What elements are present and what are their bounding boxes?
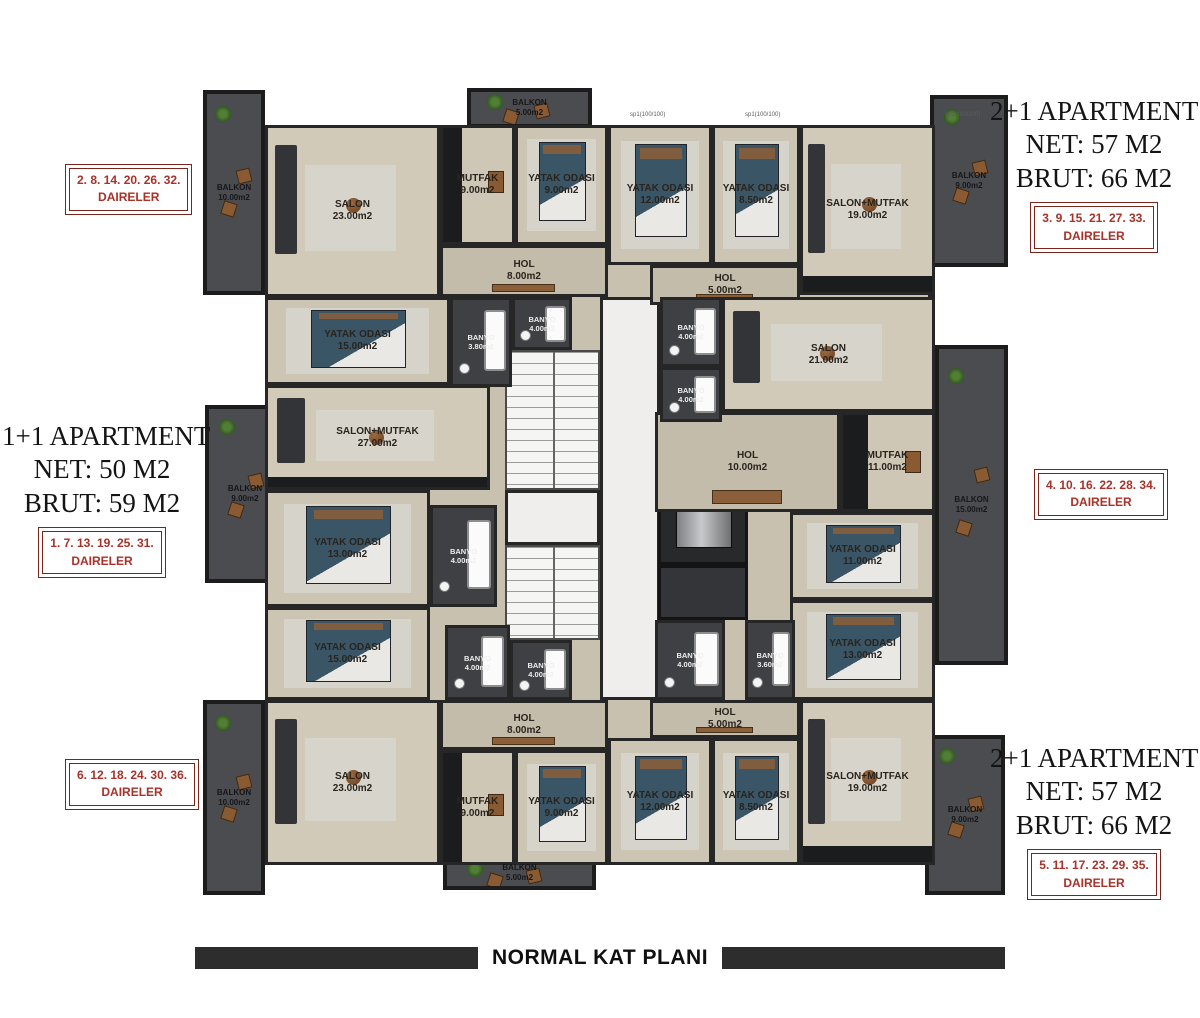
daireler-label: DAIRELER bbox=[50, 553, 153, 570]
room-label: BANYO4.00m2 bbox=[464, 654, 491, 672]
room-label: BANYO4.00m2 bbox=[677, 323, 704, 341]
room-label: YATAK ODASI15.00m2 bbox=[324, 329, 391, 353]
balcony: BALKON10.00m2 bbox=[203, 90, 265, 295]
room-hol: HOL10.00m2 bbox=[655, 412, 840, 512]
plant-icon bbox=[487, 94, 503, 110]
apartment-net: NET: 57 M2 bbox=[990, 775, 1198, 808]
apartment-brut: BRUT: 66 M2 bbox=[990, 162, 1198, 195]
daireler-label: DAIRELER bbox=[77, 784, 187, 801]
room-label: YATAK ODASI8.50m2 bbox=[723, 790, 790, 814]
room-label: HOL8.00m2 bbox=[507, 259, 541, 283]
room-label: BALKON5.00m2 bbox=[502, 863, 536, 882]
room-label: SALON+MUTFAK19.00m2 bbox=[826, 771, 909, 795]
room-label: BALKON15.00m2 bbox=[954, 495, 988, 514]
room-banyo: BANYO4.00m2 bbox=[510, 640, 572, 700]
unit-box-middle-left: 1. 7. 13. 19. 25. 31. DAIRELER bbox=[38, 527, 165, 578]
sink bbox=[519, 680, 530, 691]
unit-numbers: 2. 8. 14. 20. 26. 32. bbox=[77, 172, 180, 189]
room-label: BALKON10.00m2 bbox=[217, 788, 251, 807]
room-label: HOL5.00m2 bbox=[708, 707, 742, 731]
unit-box-bottom-left: 6. 12. 18. 24. 30. 36. DAIRELER bbox=[65, 759, 199, 810]
room-mutfak: MUTFAK11.00m2 bbox=[840, 412, 935, 512]
sofa bbox=[277, 398, 305, 463]
room-yatak-odasi: YATAK ODASI13.00m2 bbox=[265, 490, 430, 607]
apartment-info-bottom-right: 2+1 APARTMENT NET: 57 M2 BRUT: 66 M2 5. … bbox=[990, 742, 1198, 900]
room-yatak-odasi: YATAK ODASI15.00m2 bbox=[265, 607, 430, 700]
room-yatak-odasi: YATAK ODASI8.50m2 bbox=[712, 125, 800, 265]
room-label: YATAK ODASI9.00m2 bbox=[528, 796, 595, 820]
room-label: BALKON5.00m2 bbox=[512, 98, 546, 117]
apartment-info-middle-left: 1+1 APARTMENT NET: 50 M2 BRUT: 59 M2 1. … bbox=[2, 420, 202, 578]
room-label: YATAK ODASI8.50m2 bbox=[723, 183, 790, 207]
room-label: YATAK ODASI13.00m2 bbox=[829, 638, 896, 662]
room-label: BALKON10.00m2 bbox=[217, 183, 251, 202]
core-area bbox=[658, 565, 748, 620]
room-label: HOL5.00m2 bbox=[708, 273, 742, 297]
plant-icon bbox=[948, 368, 964, 384]
sofa bbox=[733, 311, 760, 383]
room-label: SALON23.00m2 bbox=[333, 771, 372, 795]
plant-icon bbox=[215, 715, 231, 731]
apartment-net: NET: 50 M2 bbox=[2, 453, 202, 486]
room-label: BANYO4.00m2 bbox=[527, 661, 554, 679]
apartment-type-title: 1+1 APARTMENT bbox=[2, 420, 202, 453]
room-salon-mutfak: SALON+MUTFAK27.00m2 bbox=[265, 385, 490, 490]
unit-numbers: 1. 7. 13. 19. 25. 31. bbox=[50, 535, 153, 552]
room-banyo: BANYO4.00m2 bbox=[512, 297, 572, 350]
sideboard bbox=[712, 490, 782, 504]
core-area bbox=[600, 297, 660, 700]
kitchen-counter bbox=[803, 846, 932, 862]
room-label: HOL8.00m2 bbox=[507, 713, 541, 737]
room-yatak-odasi: YATAK ODASI9.00m2 bbox=[515, 750, 608, 865]
room-banyo: BANYO3.60m2 bbox=[745, 620, 795, 700]
kitchen-counter bbox=[843, 415, 868, 509]
sink bbox=[752, 677, 763, 688]
kitchen-counter bbox=[803, 276, 932, 292]
window-dimension-label: sp1(100/100) bbox=[630, 112, 680, 120]
sofa bbox=[275, 145, 297, 255]
sink bbox=[454, 678, 465, 689]
room-label: YATAK ODASI12.00m2 bbox=[627, 183, 694, 207]
room-label: BANYO4.00m2 bbox=[528, 315, 555, 333]
room-banyo: BANYO3.80m2 bbox=[450, 297, 512, 387]
unit-box-middle-right: 4. 10. 16. 22. 28. 34. DAIRELER bbox=[1034, 469, 1168, 520]
room-salon: SALON23.00m2 bbox=[265, 125, 440, 297]
unit-numbers: 5. 11. 17. 23. 29. 35. bbox=[1039, 857, 1148, 874]
room-mutfak: MUTFAK9.00m2 bbox=[440, 125, 515, 245]
floor-plan: BALKON10.00m2BALKON5.00m2BALKON9.00m2BAL… bbox=[200, 85, 1010, 900]
apartment-info-top-right: 2+1 APARTMENT NET: 57 M2 BRUT: 66 M2 3. … bbox=[990, 95, 1198, 253]
room-label: YATAK ODASI12.00m2 bbox=[627, 790, 694, 814]
room-yatak-odasi: YATAK ODASI9.00m2 bbox=[515, 125, 608, 245]
room-label: BANYO3.60m2 bbox=[756, 651, 783, 669]
window-dimension-label: sp1(100/100) bbox=[745, 112, 795, 120]
room-yatak-odasi: YATAK ODASI12.00m2 bbox=[608, 125, 712, 265]
apartment-type-title: 2+1 APARTMENT bbox=[990, 95, 1198, 128]
room-banyo: BANYO4.00m2 bbox=[430, 505, 497, 607]
sideboard bbox=[492, 737, 556, 745]
balcony-chair bbox=[220, 201, 238, 219]
daireler-label: DAIRELER bbox=[1042, 228, 1145, 245]
window-dimension-label: sp1(100/100) bbox=[945, 112, 995, 120]
room-label: BALKON9.00m2 bbox=[948, 805, 982, 824]
room-salon: SALON23.00m2 bbox=[265, 700, 440, 865]
room-hol: HOL8.00m2 bbox=[440, 245, 608, 297]
footer-bar-right bbox=[722, 947, 1005, 969]
staircase bbox=[505, 545, 600, 640]
room-yatak-odasi: YATAK ODASI15.00m2 bbox=[265, 297, 450, 385]
apartment-brut: BRUT: 66 M2 bbox=[990, 809, 1198, 842]
room-banyo: BANYO4.00m2 bbox=[655, 620, 725, 700]
room-label: BALKON9.00m2 bbox=[228, 484, 262, 503]
plant-icon bbox=[215, 106, 231, 122]
room-yatak-odasi: YATAK ODASI13.00m2 bbox=[790, 600, 935, 700]
core-area bbox=[505, 490, 600, 545]
balcony-chair bbox=[235, 167, 252, 184]
unit-box-bottom-right: 5. 11. 17. 23. 29. 35. DAIRELER bbox=[1027, 849, 1160, 900]
unit-numbers: 6. 12. 18. 24. 30. 36. bbox=[77, 767, 187, 784]
sink bbox=[459, 363, 470, 374]
sink bbox=[664, 677, 675, 688]
plant-icon bbox=[219, 419, 235, 435]
room-banyo: BANYO4.00m2 bbox=[660, 367, 722, 422]
sofa bbox=[808, 719, 825, 824]
room-label: BANYO4.00m2 bbox=[676, 651, 703, 669]
sink bbox=[669, 402, 680, 413]
room-hol: HOL8.00m2 bbox=[440, 700, 608, 750]
balcony: BALKON5.00m2 bbox=[467, 88, 592, 128]
room-label: HOL10.00m2 bbox=[728, 450, 767, 474]
room-label: SALON+MUTFAK27.00m2 bbox=[336, 426, 419, 450]
room-label: SALON21.00m2 bbox=[809, 343, 848, 367]
room-label: SALON23.00m2 bbox=[333, 199, 372, 223]
balcony-chair bbox=[486, 872, 504, 890]
balcony-chair bbox=[973, 466, 990, 483]
sideboard bbox=[492, 284, 556, 292]
staircase bbox=[505, 350, 600, 490]
room-label: YATAK ODASI9.00m2 bbox=[528, 173, 595, 197]
footer-bar-left bbox=[195, 947, 478, 969]
unit-box-top-left: 2. 8. 14. 20. 26. 32. DAIRELER bbox=[65, 164, 192, 215]
kitchen-counter bbox=[268, 477, 487, 487]
daireler-label: DAIRELER bbox=[77, 189, 180, 206]
room-mutfak: MUTFAK9.00m2 bbox=[440, 750, 515, 865]
sofa bbox=[808, 144, 825, 252]
room-hol: HOL5.00m2 bbox=[650, 700, 800, 738]
apartment-net: NET: 57 M2 bbox=[990, 128, 1198, 161]
room-label: YATAK ODASI15.00m2 bbox=[314, 642, 381, 666]
unit-numbers: 3. 9. 15. 21. 27. 33. bbox=[1042, 210, 1145, 227]
sink bbox=[669, 345, 680, 356]
sink bbox=[439, 581, 450, 592]
room-salon: SALON21.00m2 bbox=[722, 297, 935, 412]
room-salon-mutfak: SALON+MUTFAK19.00m2 bbox=[800, 700, 935, 865]
room-label: BANYO3.80m2 bbox=[467, 333, 494, 351]
apartment-type-title: 2+1 APARTMENT bbox=[990, 742, 1198, 775]
room-label: MUTFAK9.00m2 bbox=[457, 173, 499, 197]
room-label: YATAK ODASI11.00m2 bbox=[829, 544, 896, 568]
room-yatak-odasi: YATAK ODASI11.00m2 bbox=[790, 512, 935, 600]
balcony-chair bbox=[955, 519, 973, 537]
room-label: MUTFAK9.00m2 bbox=[457, 796, 499, 820]
room-label: BANYO4.00m2 bbox=[450, 547, 477, 565]
room-yatak-odasi: YATAK ODASI12.00m2 bbox=[608, 738, 712, 865]
balcony-chair bbox=[220, 805, 238, 823]
daireler-label: DAIRELER bbox=[1039, 875, 1148, 892]
apartment-brut: BRUT: 59 M2 bbox=[2, 487, 202, 520]
balcony: BALKON10.00m2 bbox=[203, 700, 265, 895]
daireler-label: DAIRELER bbox=[1046, 494, 1156, 511]
room-label: SALON+MUTFAK19.00m2 bbox=[826, 198, 909, 222]
unit-box-top-right: 3. 9. 15. 21. 27. 33. DAIRELER bbox=[1030, 202, 1157, 253]
room-salon-mutfak: SALON+MUTFAK19.00m2 bbox=[800, 125, 935, 295]
plant-icon bbox=[939, 748, 955, 764]
room-label: BANYO4.00m2 bbox=[677, 386, 704, 404]
footer-bar: NORMAL KAT PLANI bbox=[195, 946, 1005, 970]
room-yatak-odasi: YATAK ODASI8.50m2 bbox=[712, 738, 800, 865]
room-label: YATAK ODASI13.00m2 bbox=[314, 537, 381, 561]
room-label: MUTFAK11.00m2 bbox=[867, 450, 909, 474]
sofa bbox=[275, 719, 297, 824]
plan-title: NORMAL KAT PLANI bbox=[478, 946, 722, 970]
unit-numbers: 4. 10. 16. 22. 28. 34. bbox=[1046, 477, 1156, 494]
balcony: BALKON15.00m2 bbox=[935, 345, 1008, 665]
room-banyo: BANYO4.00m2 bbox=[445, 625, 510, 700]
room-label: BALKON9.00m2 bbox=[952, 171, 986, 190]
room-banyo: BANYO4.00m2 bbox=[660, 297, 722, 367]
